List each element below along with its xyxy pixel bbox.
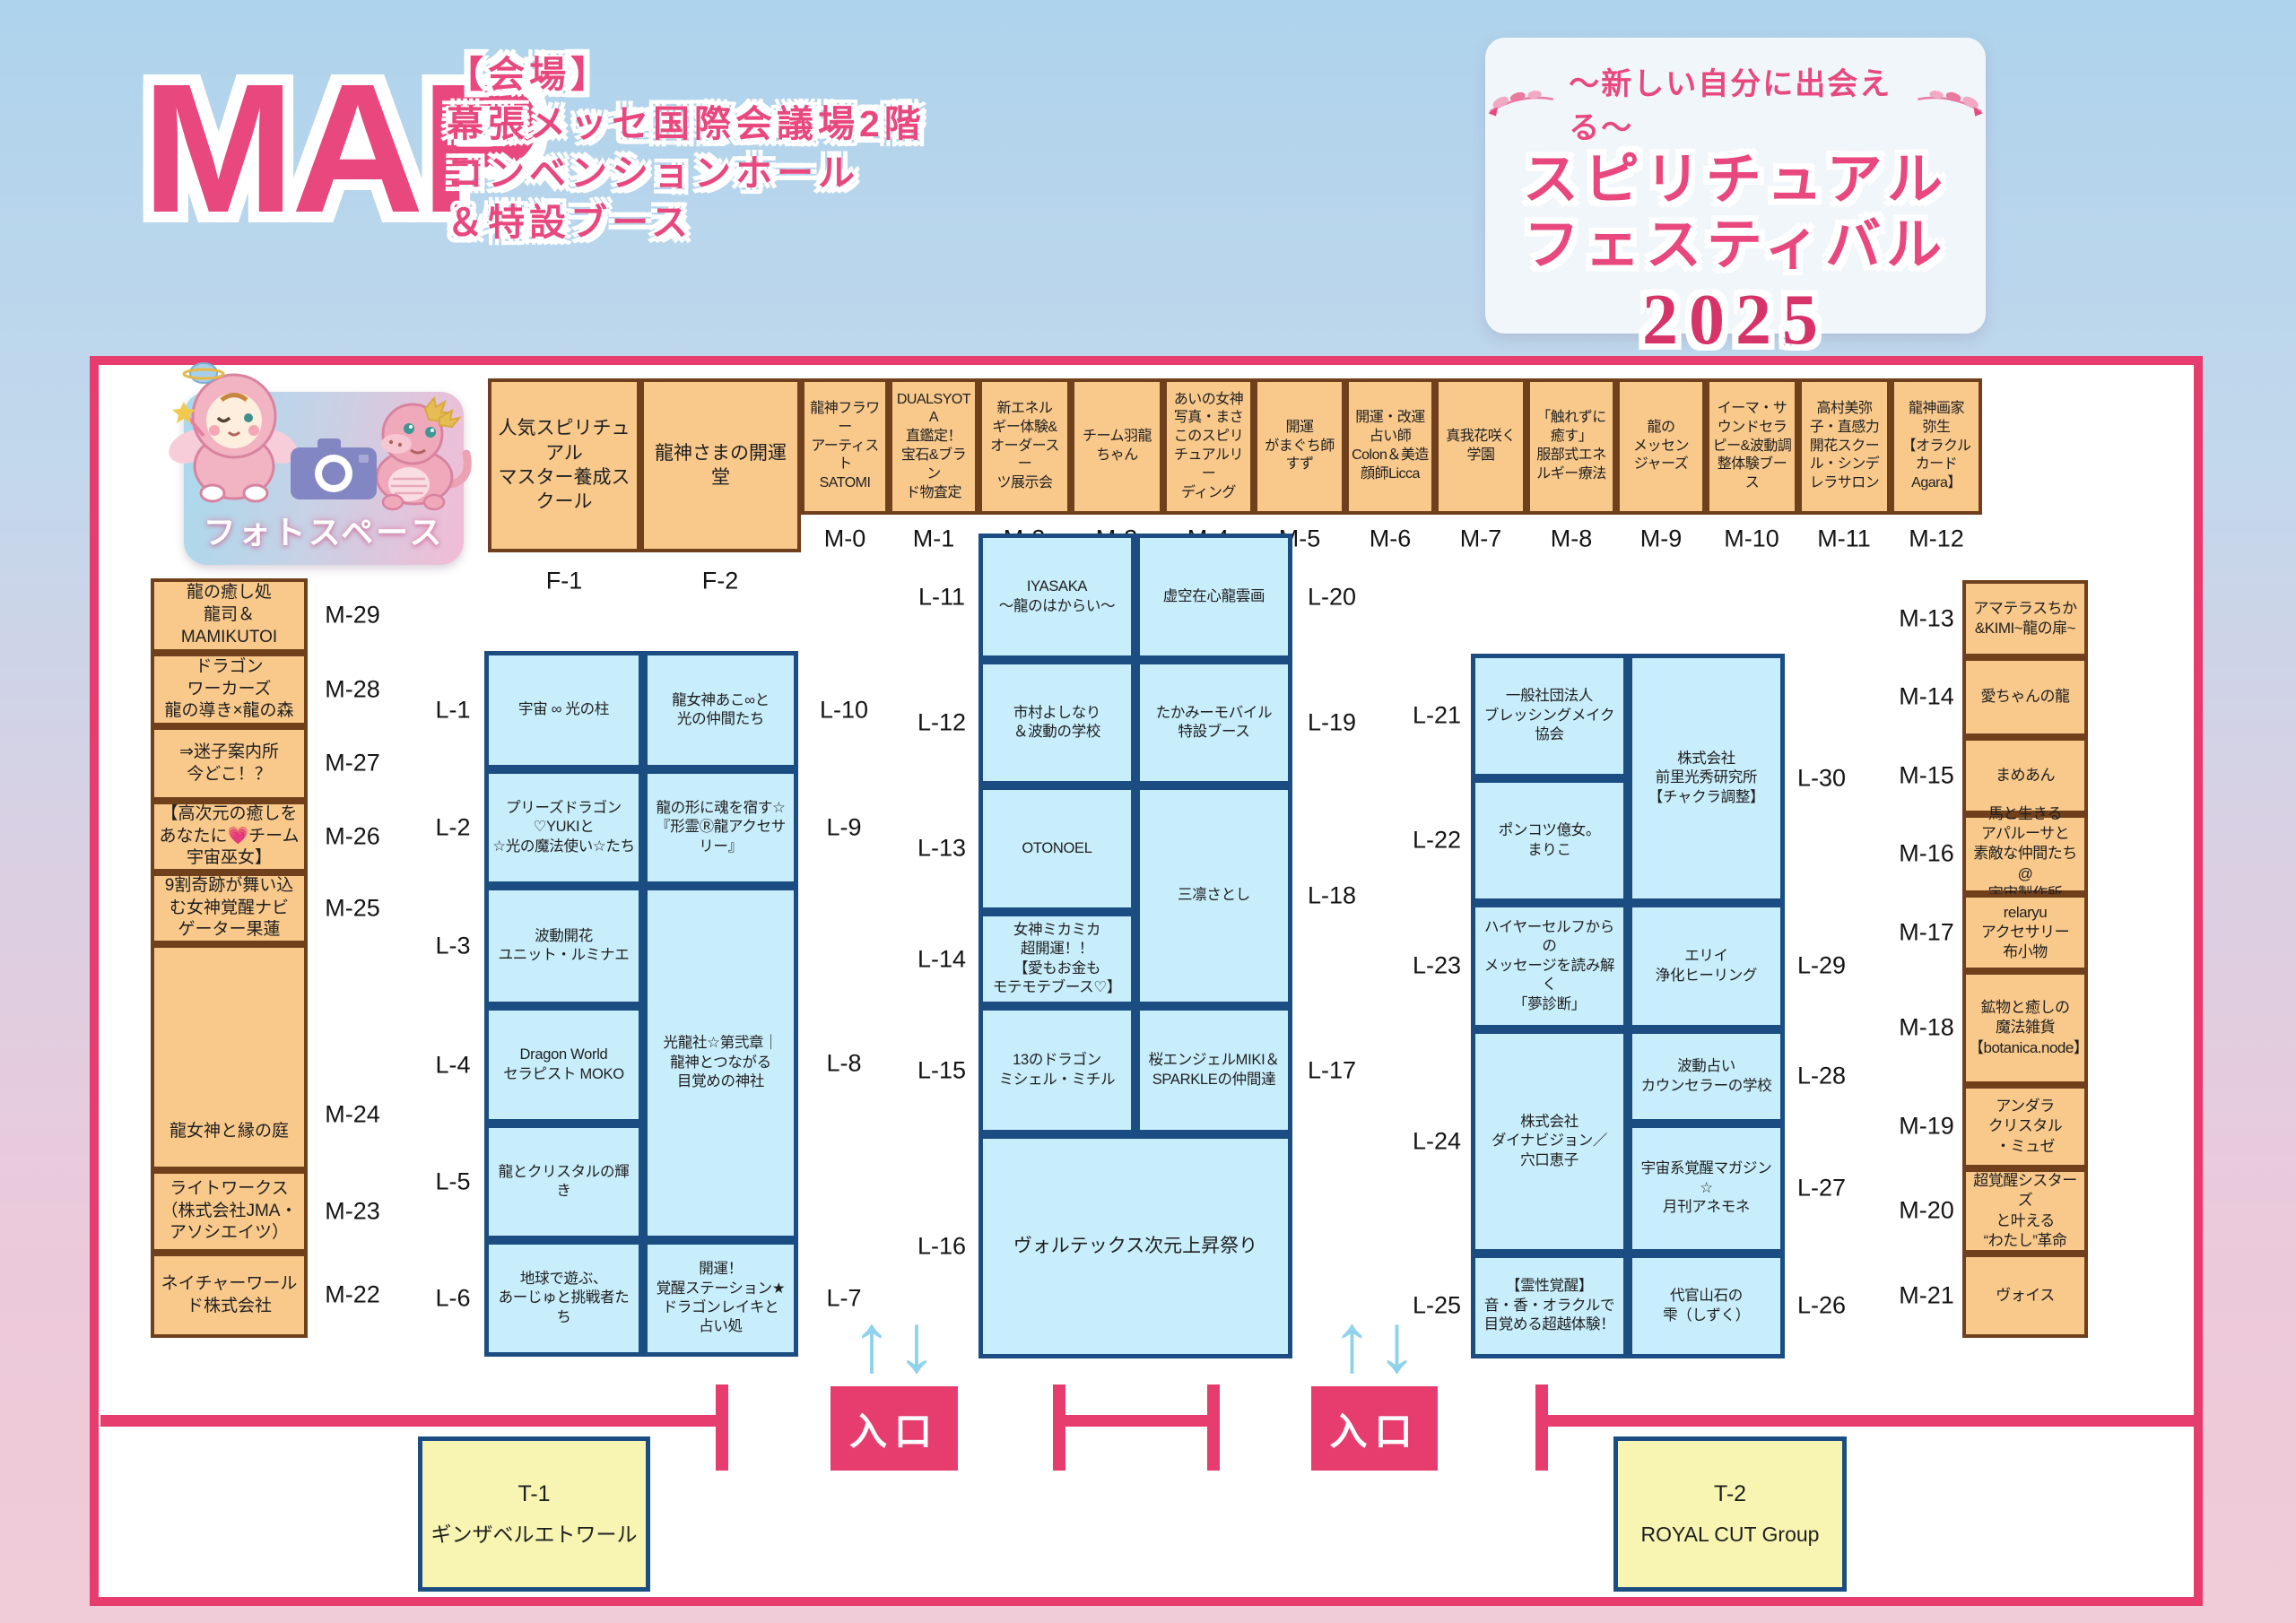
- booth-id-L-24: L-24: [1413, 1128, 1461, 1156]
- booth-L-22: ポンコツ億女。 まりこ: [1471, 778, 1628, 903]
- booth-M-20: 超覚醒シスターズ と叶える “わたし”革命: [1962, 1168, 2088, 1254]
- booth-L-8: 光龍社☆第弐章｜ 龍神とつながる 目覚めの神社: [643, 886, 798, 1240]
- booth-L-21: 一般社団法人 ブレッシングメイク 協会: [1471, 654, 1628, 778]
- booth-id-L-9: L-9: [826, 814, 861, 842]
- entrance-badge: 入口: [831, 1386, 958, 1471]
- booth-id-M-22: M-22: [325, 1281, 380, 1309]
- booth-id-L-1: L-1: [435, 697, 470, 725]
- booth-L-24: 株式会社 ダイナビジョン／ 穴口恵子: [1471, 1029, 1628, 1254]
- booth-L-26: 代官山石の 雫（しずく）: [1628, 1254, 1785, 1358]
- booth-id-L-8: L-8: [826, 1050, 861, 1078]
- booth-L-6: 地球で遊ぶ、 あーじゅと挑戦者たち: [484, 1240, 643, 1357]
- booth-id-M-9: M-9: [1640, 525, 1683, 553]
- booth-id-M-12: M-12: [1909, 525, 1964, 553]
- booth-T-1: T-1 ギンザベルエトワール: [418, 1436, 650, 1592]
- up-arrow-icon: ↑: [1332, 1302, 1373, 1384]
- booth-id-L-21: L-21: [1413, 702, 1461, 730]
- booth-M-23: ライトワークス （株式会社JMA・ アソシエイツ）: [151, 1170, 308, 1253]
- booth-L-1: 宇宙 ∞ 光の柱: [484, 651, 643, 769]
- booth-id-L-16: L-16: [918, 1233, 966, 1261]
- booth-M-1: DUALSYOTA 直鑑定！ 宝石&ブラン ド物査定: [889, 378, 978, 515]
- booth-M-25: 9割奇跡が舞い込 む女神覚醒ナビ ゲーター果蓮: [151, 872, 308, 944]
- booth-id-L-27: L-27: [1797, 1175, 1846, 1202]
- booth-id-M-6: M-6: [1370, 525, 1412, 553]
- booth-id-M-23: M-23: [325, 1198, 380, 1226]
- booth-M-6: 開運・改運 占い師 Colon＆美造 顔師Licca: [1345, 378, 1435, 515]
- event-tagline-row: ～新しい自分に出会える～: [1485, 59, 1986, 147]
- event-tagline: ～新しい自分に出会える～: [1569, 59, 1901, 147]
- booth-id-M-26: M-26: [325, 823, 380, 851]
- booth-id-L-18: L-18: [1308, 882, 1356, 910]
- booth-id-M-24: M-24: [325, 1101, 380, 1129]
- booth-L-10: 龍女神あこ∞と 光の仲間たち: [643, 651, 798, 769]
- booth-M-19: アンダラ クリスタル ・ミュゼ: [1962, 1085, 2088, 1168]
- booth-id-M-11: M-11: [1817, 525, 1871, 553]
- booth-id-L-10: L-10: [820, 697, 868, 725]
- booth-id-L-2: L-2: [435, 814, 470, 842]
- camera-icon: [289, 436, 378, 502]
- wall-cap: [1535, 1384, 1548, 1471]
- booth-id-L-11: L-11: [918, 584, 965, 612]
- booth-M-4: あいの女神 写真・まさ このスピリ チュアルリー ディング: [1163, 378, 1254, 515]
- booth-M-3: チーム羽龍 ちゃん: [1071, 378, 1163, 515]
- booth-M-14: 愛ちゃんの龍: [1962, 657, 2088, 737]
- booth-L-13: OTONOEL: [978, 785, 1135, 912]
- booth-L-3: 波動開花 ユニット・ルミナエ: [484, 886, 643, 1006]
- booth-name-T-2: ROYAL CUT Group: [1615, 1522, 1845, 1549]
- entrance-flow-arrows: ↑ ↓: [831, 1302, 958, 1384]
- booth-id-L-14: L-14: [918, 946, 966, 974]
- booth-id-M-13: M-13: [1899, 605, 1954, 633]
- booth-id-L-17: L-17: [1308, 1057, 1356, 1085]
- booth-id-L-29: L-29: [1797, 952, 1846, 980]
- event-title-line2: フェスティバル: [1524, 213, 1947, 278]
- booth-id-L-5: L-5: [435, 1168, 470, 1196]
- booth-id-M-27: M-27: [325, 750, 380, 777]
- booth-id-F-1: F-1: [546, 568, 583, 595]
- booth-L-9: 龍の形に魂を宿す☆ 『形霊Ⓡ龍アクセサ リー』: [643, 769, 798, 886]
- booth-id-L-4: L-4: [435, 1052, 470, 1080]
- booth-M-15: まめあん: [1962, 737, 2088, 814]
- booth-M-5: 開運 がまぐち師 すず: [1254, 378, 1345, 515]
- booth-L-25: 【霊性覚醒】 音・香・オラクルで 目覚める超越体験！: [1471, 1254, 1628, 1358]
- booth-M-22: ネイチャーワール ド株式会社: [151, 1253, 308, 1338]
- booth-L-30: 株式会社 前里光秀研究所 【チャクラ調整】: [1628, 654, 1785, 903]
- booth-id-L-30: L-30: [1797, 765, 1846, 793]
- event-year: 2025: [1642, 280, 1829, 361]
- booth-L-2: プリーズドラゴン ♡YUKIと ☆光の魔法使い☆たち: [484, 769, 643, 886]
- venue-line: 【会場】: [447, 50, 926, 100]
- booth-id-L-15: L-15: [918, 1057, 966, 1085]
- wall-segment: [1542, 1415, 2194, 1427]
- booth-L-15: 13のドラゴン ミシェル・ミチル: [978, 1006, 1135, 1134]
- booth-id-M-17: M-17: [1899, 919, 1954, 947]
- booth-id-M-0: M-0: [824, 525, 866, 553]
- booth-L-17: 桜エンジェルMIKI＆ SPARKLEの仲間達: [1135, 1006, 1292, 1134]
- event-title-card: ～新しい自分に出会える～ スピリチュアル フェスティバル 2025: [1485, 38, 1986, 334]
- wall-cap: [1207, 1384, 1220, 1471]
- booth-id-M-16: M-16: [1899, 840, 1954, 868]
- booth-M-29: 龍の癒し処 龍司＆ MAMIKUTOI: [151, 578, 308, 653]
- booth-L-5: 龍とクリスタルの輝き: [484, 1124, 643, 1240]
- booth-M-28: ドラゴン ワーカーズ 龍の導き×龍の森: [151, 653, 308, 726]
- booth-id-M-1: M-1: [913, 525, 955, 553]
- booth-L-11: IYASAKA ～龍のはからい～: [978, 534, 1135, 660]
- down-arrow-icon: ↓: [896, 1302, 937, 1384]
- booth-M-10: イーマ・サ ウンドセラ ピー&波動調 整体験ブース: [1706, 378, 1798, 515]
- venue-line: コンベンションホール: [447, 149, 926, 198]
- booth-id-M-25: M-25: [325, 895, 380, 923]
- booth-id-M-28: M-28: [325, 676, 380, 704]
- booth-id-L-26: L-26: [1797, 1292, 1846, 1320]
- entrance-badge: 入口: [1311, 1386, 1438, 1471]
- booth-M-18: 鉱物と癒しの 魔法雑貨 【botanica.node】: [1962, 971, 2088, 1085]
- booth-id-L-22: L-22: [1413, 827, 1461, 855]
- leaf-decoration-icon: [1915, 84, 1986, 122]
- booth-M-26: 【高次元の癒しを あなたに💗チーム 宇宙巫女】: [151, 801, 308, 872]
- booth-id-L-23: L-23: [1413, 952, 1461, 980]
- booth-L-29: エリイ 浄化ヒーリング: [1628, 903, 1785, 1029]
- booth-id-M-18: M-18: [1899, 1014, 1954, 1042]
- booth-M-27: ⇒迷子案内所 今どこ！？: [151, 726, 308, 801]
- booth-M-11: 高村美弥 子・直感力 開花スクー ル・シンデ レラサロン: [1798, 378, 1891, 515]
- event-title-line1: スピリチュアル: [1523, 147, 1948, 213]
- booth-id-F-2: F-2: [702, 568, 739, 595]
- booth-id-L-6: L-6: [435, 1285, 470, 1313]
- booth-name-T-1: ギンザベルエトワール: [420, 1522, 648, 1549]
- booth-id-M-7: M-7: [1460, 525, 1502, 553]
- venue-line: ＆特設ブース: [447, 198, 926, 247]
- booth-M-12: 龍神画家 弥生 【オラクル カード Agara】: [1891, 378, 1982, 515]
- booth-T-2: T-2 ROYAL CUT Group: [1613, 1436, 1847, 1592]
- booth-M-2: 新エネル ギー体験& オーダースー ツ展示会: [978, 378, 1071, 515]
- booth-L-18: 三凛さとし: [1135, 785, 1292, 1006]
- booth-F-1: 人気スピリチュアル マスター養成スクール: [488, 378, 640, 552]
- booth-id-L-12: L-12: [918, 709, 966, 737]
- booth-L-19: たかみーモバイル 特設ブース: [1135, 660, 1292, 785]
- booth-F-2: 龍神さまの開運堂: [640, 378, 801, 552]
- booth-M-24: 龍女神と縁の庭: [151, 944, 308, 1170]
- booth-M-7: 真我花咲く 学園: [1435, 378, 1526, 515]
- booth-M-21: ヴォイス: [1962, 1254, 2088, 1338]
- booth-id-L-3: L-3: [435, 933, 470, 960]
- down-arrow-icon: ↓: [1377, 1302, 1418, 1384]
- booth-L-7: 開運！ 覚醒ステーション★ ドラゴンレイキと 占い処: [643, 1240, 798, 1357]
- booth-id-M-8: M-8: [1551, 525, 1593, 553]
- wall-segment: [100, 1415, 716, 1427]
- booth-M-8: 「触れずに 癒す」 服部式エネ ルギー療法: [1526, 378, 1616, 515]
- booth-L-16: ヴォルテックス次元上昇祭り: [978, 1134, 1292, 1358]
- booth-L-4: Dragon World セラピスト MOKO: [484, 1006, 643, 1124]
- booth-M-9: 龍の メッセン ジャーズ: [1616, 378, 1706, 515]
- booth-M-0: 龍神フラワー アーティスト SATOMI: [801, 378, 889, 515]
- booth-id-L-13: L-13: [918, 835, 966, 863]
- entrance-flow-arrows: ↑ ↓: [1311, 1302, 1438, 1384]
- booth-id-L-20: L-20: [1308, 584, 1356, 612]
- venue-info: 【会場】 幕張メッセ国際会議場2階 コンベンションホール ＆特設ブース: [447, 50, 926, 247]
- booth-id-M-14: M-14: [1899, 683, 1954, 711]
- booth-M-16: 馬と生きる アパルーサと 素敵な仲間たち@ 宇宙製作所: [1962, 814, 2088, 894]
- baby-fairy-illustration: [166, 357, 302, 508]
- booth-M-17: relaryu アクセサリー 布小物: [1962, 894, 2088, 971]
- booth-L-14: 女神ミカミカ 超開運！！ 【愛もお金も モテモテブース♡】: [978, 912, 1135, 1006]
- booth-id-M-15: M-15: [1899, 762, 1954, 790]
- wall-segment: [1059, 1415, 1213, 1427]
- booth-id-M-29: M-29: [325, 602, 380, 629]
- booth-L-28: 波動占い カウンセラーの学校: [1628, 1029, 1785, 1124]
- booth-id-L-19: L-19: [1308, 709, 1356, 737]
- booth-id-T-2: T-2: [1615, 1480, 1845, 1509]
- venue-line: 幕張メッセ国際会議場2階: [447, 100, 926, 149]
- booth-id-M-19: M-19: [1899, 1113, 1954, 1141]
- booth-id-M-21: M-21: [1899, 1282, 1954, 1310]
- booth-L-12: 市村よしなり ＆波動の学校: [978, 660, 1135, 785]
- festival-map-page: MAP 【会場】 幕張メッセ国際会議場2階 コンベンションホール ＆特設ブース …: [0, 0, 2296, 1623]
- booth-id-M-20: M-20: [1899, 1197, 1954, 1225]
- booth-M-13: アマテラスちか &KIMI~龍の扉~: [1962, 580, 2088, 657]
- booth-L-23: ハイヤーセルフからの メッセージを読み解く 「夢診断」: [1471, 903, 1628, 1029]
- booth-L-20: 虚空在心龍雲画: [1135, 534, 1292, 660]
- booth-id-T-1: T-1: [420, 1480, 648, 1509]
- wall-cap: [1053, 1384, 1065, 1471]
- leaf-decoration-icon: [1485, 84, 1556, 122]
- up-arrow-icon: ↑: [851, 1302, 892, 1384]
- photo-space-label: フォトスペース: [184, 507, 464, 553]
- booth-L-27: 宇宙系覚醒マガジン☆ 月刊アネモネ: [1628, 1124, 1785, 1254]
- booth-id-L-28: L-28: [1797, 1063, 1846, 1090]
- wall-cap: [716, 1384, 728, 1471]
- booth-id-M-10: M-10: [1724, 525, 1779, 553]
